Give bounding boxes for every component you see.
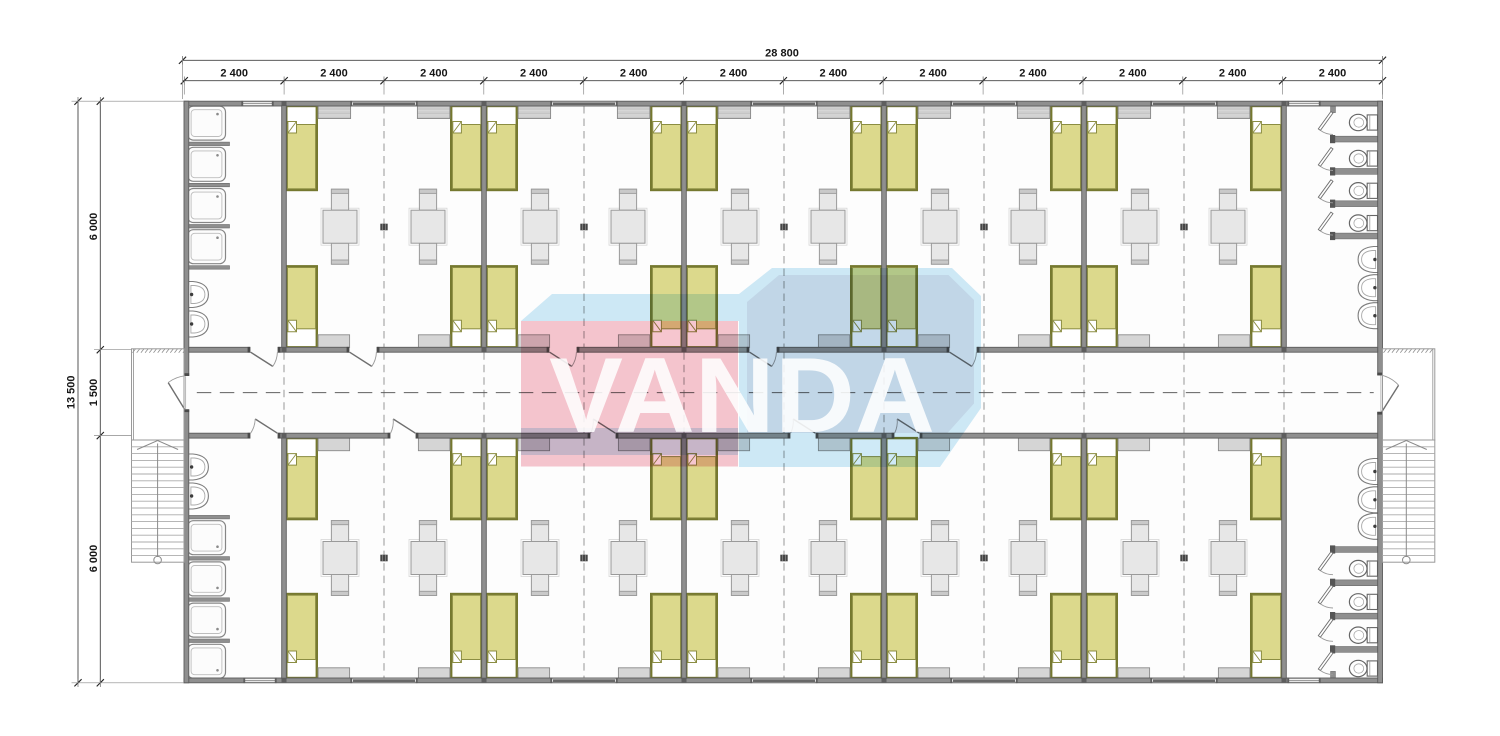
svg-text:6 000: 6 000 (88, 213, 100, 241)
svg-text:2 400: 2 400 (720, 67, 748, 79)
svg-text:2 400: 2 400 (1019, 67, 1047, 79)
svg-text:2 400: 2 400 (620, 67, 648, 79)
svg-text:2 400: 2 400 (220, 67, 248, 79)
svg-text:2 400: 2 400 (1319, 67, 1347, 79)
svg-text:2 400: 2 400 (1219, 67, 1247, 79)
svg-text:2 400: 2 400 (919, 67, 947, 79)
svg-text:VANDA: VANDA (549, 335, 935, 455)
svg-text:2 400: 2 400 (320, 67, 348, 79)
svg-text:13 500: 13 500 (66, 375, 78, 409)
svg-text:1 500: 1 500 (88, 379, 100, 407)
svg-text:2 400: 2 400 (1119, 67, 1147, 79)
svg-text:28 800: 28 800 (765, 48, 799, 60)
svg-text:2 400: 2 400 (420, 67, 448, 79)
svg-text:2 400: 2 400 (820, 67, 848, 79)
svg-text:2 400: 2 400 (520, 67, 548, 79)
svg-text:6 000: 6 000 (88, 545, 100, 573)
